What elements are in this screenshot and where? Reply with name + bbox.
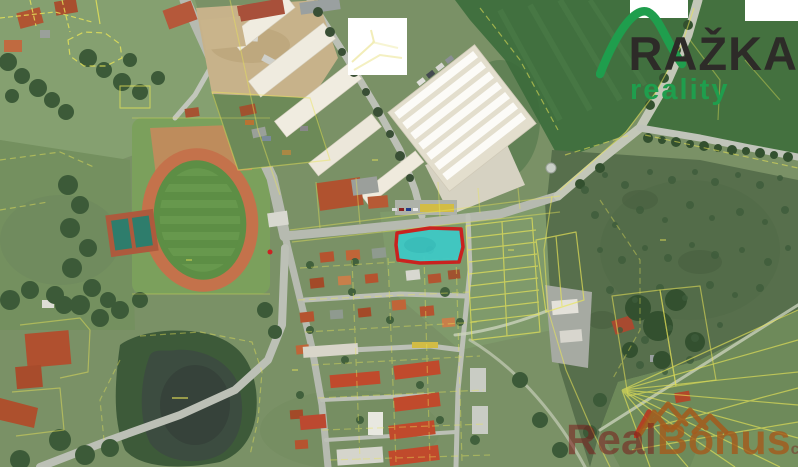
agency-subtitle: reality: [630, 76, 729, 105]
watermark-part2: Bonus: [657, 416, 791, 464]
watermark-text: RealBonuscz: [566, 419, 798, 462]
listing-map-image: RAŽKA reality RealBonuscz: [0, 0, 798, 467]
parcel-texture: [404, 237, 436, 253]
pond-area: [116, 330, 257, 466]
yellow-roof-garages: [420, 204, 454, 212]
tennis-courts: [105, 209, 158, 257]
agency-logo: RAŽKA reality: [596, 0, 798, 128]
white-mask-square: [348, 18, 407, 75]
watermark: RealBonuscz: [560, 396, 798, 464]
watermark-suffix: cz: [791, 441, 798, 458]
agency-name: RAŽKA: [629, 30, 798, 77]
watermark-part1: Real: [566, 416, 657, 464]
small-reservoir: [546, 163, 556, 173]
road-marker-dot: [268, 250, 273, 255]
